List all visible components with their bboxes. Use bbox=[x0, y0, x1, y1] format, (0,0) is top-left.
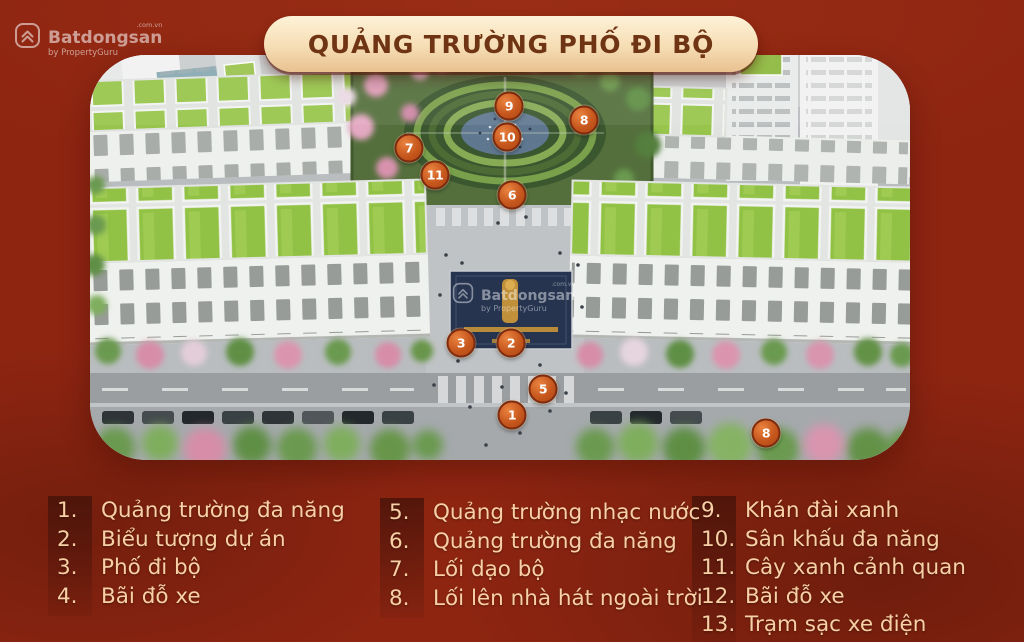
legend-column-1: 1.Quảng trường đa năng2.Biểu tượng dự án… bbox=[48, 498, 345, 612]
legend-item-label: Lối lên nhà hát ngoài trời bbox=[433, 586, 703, 611]
legend-item-label: Cây xanh cảnh quan bbox=[745, 555, 966, 580]
legend-item-label: Trạm sạc xe điện bbox=[745, 612, 926, 637]
map-marker-9: 9 bbox=[495, 92, 524, 121]
legend-item-number: 5. bbox=[380, 500, 429, 525]
map-marker-10: 10 bbox=[493, 123, 522, 152]
map-marker-1: 1 bbox=[498, 401, 527, 430]
title-banner: QUẢNG TRƯỜNG PHỐ ĐI BỘ bbox=[264, 16, 758, 72]
legend-item-label: Phố đi bộ bbox=[101, 555, 201, 580]
batdongsan-logo: .com.vn Batdongsan by PropertyGuru bbox=[14, 22, 162, 57]
legend-item-number: 12. bbox=[692, 584, 741, 609]
map-marker-8: 8 bbox=[570, 106, 599, 135]
legend-item: 3.Phố đi bộ bbox=[48, 555, 345, 584]
markers-layer: 9810711632518 bbox=[90, 55, 910, 460]
legend-item-number: 1. bbox=[48, 498, 97, 523]
legend-item: 11.Cây xanh cảnh quan bbox=[692, 555, 966, 584]
legend-item-label: Quảng trường nhạc nước bbox=[433, 500, 700, 525]
legend-item: 2.Biểu tượng dự án bbox=[48, 527, 345, 556]
map-marker-5: 5 bbox=[529, 375, 558, 404]
page-background: .com.vn Batdongsan by PropertyGuru bbox=[0, 0, 1024, 642]
legend-item-number: 3. bbox=[48, 555, 97, 580]
map-marker-3: 3 bbox=[447, 329, 476, 358]
legend-list-1: 1.Quảng trường đa năng2.Biểu tượng dự án… bbox=[48, 498, 345, 612]
legend-item-number: 7. bbox=[380, 557, 429, 582]
legend-item-number: 8. bbox=[380, 586, 429, 611]
brand-text: .com.vn Batdongsan by PropertyGuru bbox=[48, 22, 162, 57]
legend-item: 5.Quảng trường nhạc nước bbox=[380, 500, 703, 529]
legend-item: 12.Bãi đỗ xe bbox=[692, 584, 966, 613]
legend-column-3: 9.Khán đài xanh10.Sân khấu đa năng11.Cây… bbox=[692, 498, 966, 641]
aerial-render: .com.vn Batdongsan by PropertyGuru 98107… bbox=[90, 55, 910, 460]
legend-item: 7.Lối dạo bộ bbox=[380, 557, 703, 586]
legend-item-number: 13. bbox=[692, 612, 741, 637]
brand-name: Batdongsan bbox=[48, 30, 162, 47]
legend-item: 1.Quảng trường đa năng bbox=[48, 498, 345, 527]
map-marker-2: 2 bbox=[497, 329, 526, 358]
legend-item-label: Bãi đỗ xe bbox=[745, 584, 845, 609]
legend-item-label: Lối dạo bộ bbox=[433, 557, 545, 582]
legend-item-number: 2. bbox=[48, 527, 97, 552]
legend-column-2: 5.Quảng trường nhạc nước6.Quảng trường đ… bbox=[380, 500, 703, 614]
map-marker-6: 6 bbox=[498, 181, 527, 210]
legend-item-label: Biểu tượng dự án bbox=[101, 527, 286, 552]
map-marker-11: 11 bbox=[421, 161, 450, 190]
legend-item-label: Bãi đỗ xe bbox=[101, 584, 201, 609]
legend-list-3: 9.Khán đài xanh10.Sân khấu đa năng11.Cây… bbox=[692, 498, 966, 641]
map-marker-7: 7 bbox=[395, 134, 424, 163]
batdongsan-house-icon bbox=[14, 22, 41, 49]
legend-item-label: Quảng trường đa năng bbox=[433, 529, 677, 554]
legend-item: 13.Trạm sạc xe điện bbox=[692, 612, 966, 641]
legend-item: 6.Quảng trường đa năng bbox=[380, 529, 703, 558]
legend-list-2: 5.Quảng trường nhạc nước6.Quảng trường đ… bbox=[380, 500, 703, 614]
legend-item-number: 10. bbox=[692, 527, 741, 552]
legend-item-number: 6. bbox=[380, 529, 429, 554]
page-title: QUẢNG TRƯỜNG PHỐ ĐI BỘ bbox=[308, 30, 714, 59]
legend-item-label: Quảng trường đa năng bbox=[101, 498, 345, 523]
legend-item-number: 9. bbox=[692, 498, 741, 523]
map-marker-8: 8 bbox=[752, 419, 781, 448]
legend-item: 4.Bãi đỗ xe bbox=[48, 584, 345, 613]
legend-item: 8.Lối lên nhà hát ngoài trời bbox=[380, 586, 703, 615]
legend-item-label: Sân khấu đa năng bbox=[745, 527, 940, 552]
legend-item: 10.Sân khấu đa năng bbox=[692, 527, 966, 556]
legend-item-number: 11. bbox=[692, 555, 741, 580]
legend-item: 9.Khán đài xanh bbox=[692, 498, 966, 527]
legend-item-number: 4. bbox=[48, 584, 97, 609]
legend-item-label: Khán đài xanh bbox=[745, 498, 899, 523]
